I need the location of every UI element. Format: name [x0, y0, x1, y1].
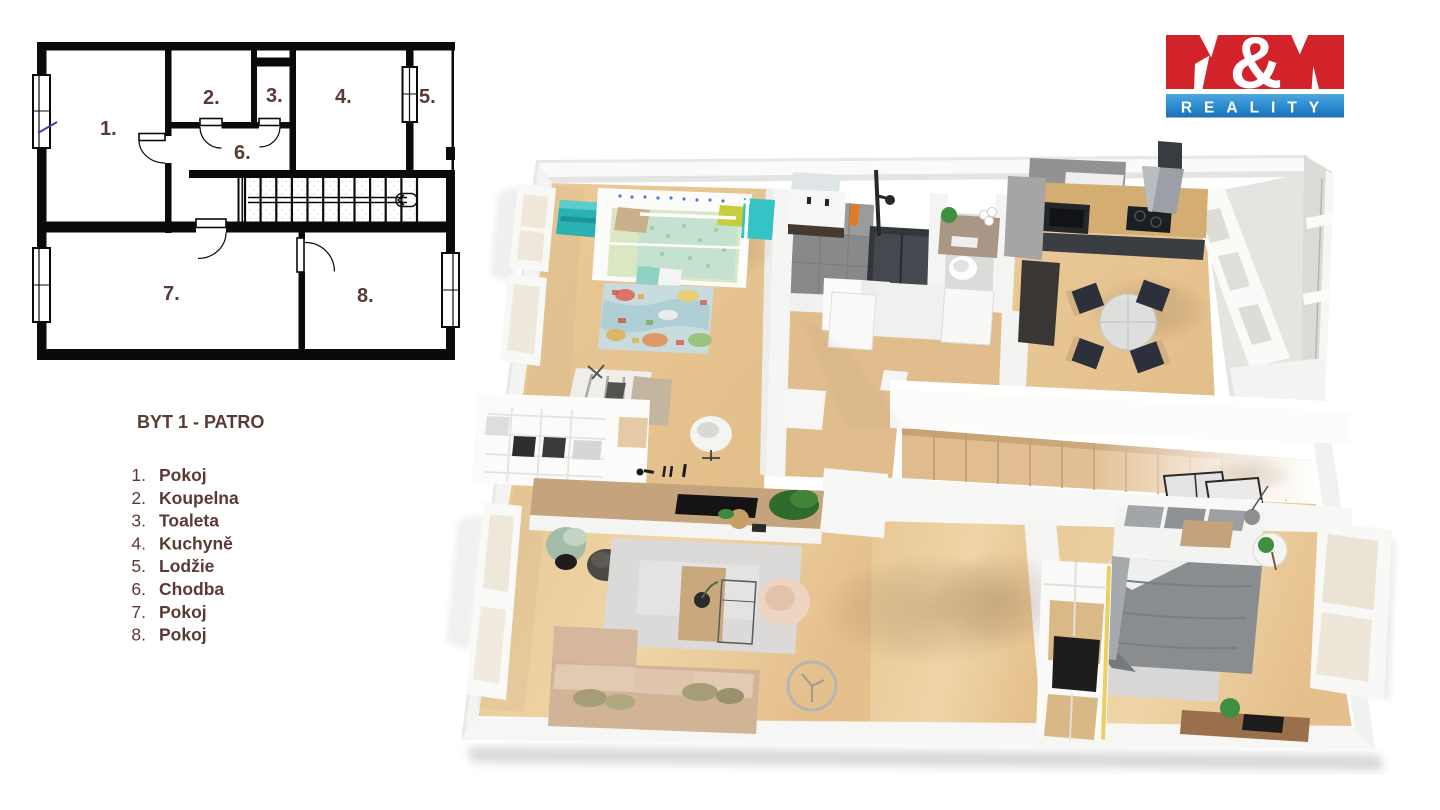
- svg-text:Toaleta: Toaleta: [159, 511, 219, 531]
- svg-text:4.: 4.: [131, 533, 146, 553]
- svg-text:&: &: [1230, 23, 1283, 104]
- svg-text:Pokoj: Pokoj: [159, 625, 207, 645]
- svg-text:Kuchyně: Kuchyně: [159, 533, 233, 553]
- svg-text:3.: 3.: [266, 85, 283, 107]
- svg-text:Lodžie: Lodžie: [159, 556, 215, 576]
- svg-text:Koupelna: Koupelna: [159, 488, 239, 508]
- svg-text:3.: 3.: [131, 511, 146, 531]
- svg-text:1.: 1.: [100, 118, 117, 140]
- svg-text:BYT 1 - PATRO: BYT 1 - PATRO: [137, 412, 264, 432]
- svg-text:Pokoj: Pokoj: [159, 465, 207, 485]
- svg-text:2.: 2.: [203, 87, 220, 109]
- svg-text:5.: 5.: [131, 556, 146, 576]
- svg-text:8.: 8.: [357, 285, 374, 307]
- svg-text:7.: 7.: [163, 283, 180, 305]
- svg-text:8.: 8.: [131, 625, 146, 645]
- svg-text:6.: 6.: [234, 142, 251, 164]
- svg-text:Chodba: Chodba: [159, 579, 224, 599]
- svg-text:REALITY: REALITY: [1181, 100, 1331, 117]
- svg-text:1.: 1.: [131, 465, 146, 485]
- svg-text:7.: 7.: [131, 602, 146, 622]
- svg-text:5.: 5.: [419, 86, 436, 108]
- svg-text:2.: 2.: [131, 488, 146, 508]
- svg-text:Pokoj: Pokoj: [159, 602, 207, 622]
- svg-text:4.: 4.: [335, 86, 352, 108]
- svg-text:6.: 6.: [131, 579, 146, 599]
